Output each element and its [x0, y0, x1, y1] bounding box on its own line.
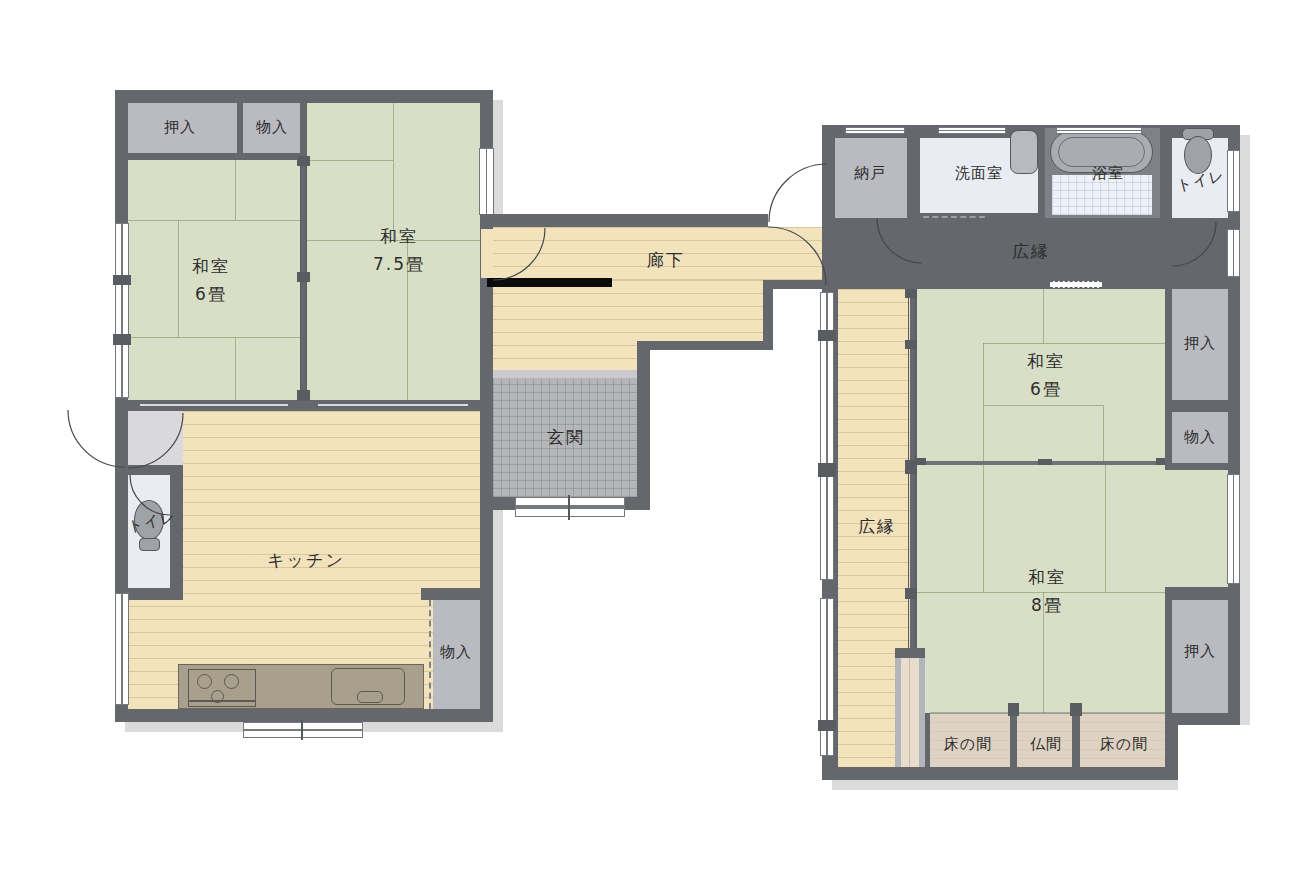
room-size-washitsu-8: 8畳 — [1031, 594, 1063, 617]
sliding-door-track — [140, 404, 288, 406]
room-label-yokushitsu: 浴室 — [1092, 164, 1124, 183]
room-label-washitsu-75: 和室 — [380, 225, 418, 248]
toilet-base-icon — [139, 538, 160, 551]
tokonoma-front-line — [930, 712, 1165, 714]
tatami-seam — [393, 103, 394, 240]
room-label-washitsu-6-left: 和室 — [192, 255, 230, 278]
room-label-kitchen: キッチン — [267, 549, 345, 572]
stove-burner-icon — [224, 674, 239, 689]
room-label-oshiire-right-top: 押入 — [1184, 334, 1216, 353]
wall-segment — [170, 465, 183, 600]
window — [115, 223, 129, 398]
entrance-door — [515, 497, 625, 517]
stove-drawer-line — [188, 700, 256, 702]
window — [1227, 474, 1240, 584]
door-tick — [568, 495, 570, 520]
window-pillar — [113, 334, 131, 345]
room-label-washitsu-6-right: 和室 — [1027, 350, 1065, 373]
window — [1056, 127, 1142, 134]
hanging-wall-dashed — [1050, 281, 1102, 288]
window — [1227, 229, 1240, 277]
tatami-alcove — [1165, 470, 1228, 587]
window — [115, 593, 129, 705]
tatami-seam — [178, 220, 179, 337]
floor-plan: 押入 物入 和室 6畳 和室 7.5畳 廊下 玄関 キッチン トイレ 物入 納戸… — [0, 0, 1297, 879]
window-pillar — [818, 720, 836, 731]
tatami-seam — [983, 405, 1103, 406]
window — [938, 127, 1006, 134]
room-washitsu-6-left — [128, 160, 300, 400]
window-wall — [820, 598, 834, 756]
tatami-seam — [235, 337, 236, 400]
window-kitchen-south — [243, 722, 363, 738]
room-label-washitsu-8: 和室 — [1028, 566, 1066, 589]
room-label-nando: 納戸 — [854, 164, 886, 183]
room-label-hiroen-side: 広縁 — [858, 515, 896, 538]
step-edge-bar — [487, 278, 612, 287]
tatami-seam — [128, 337, 300, 338]
board-grain-line — [909, 658, 910, 767]
wall-segment — [895, 648, 925, 658]
tatami-seam — [1103, 405, 1104, 463]
room-label-rouka: 廊下 — [647, 249, 685, 272]
tatami-seam — [307, 160, 393, 161]
pillar — [1070, 703, 1082, 716]
tatami-seam — [235, 160, 236, 220]
stove-burner-icon — [197, 674, 212, 689]
tatami-seam — [1043, 289, 1044, 343]
sliding-door-track — [318, 404, 468, 406]
wall-segment — [763, 280, 1240, 289]
room-label-tokonoma-right: 床の間 — [1100, 735, 1148, 754]
tatami-seam — [983, 465, 984, 592]
window-tick — [301, 720, 303, 740]
pillar — [297, 272, 310, 282]
faucet-icon — [357, 691, 383, 703]
footprint-notch — [1178, 725, 1252, 791]
tatami-seam — [983, 343, 1165, 344]
room-label-oshiire-right-bottom: 押入 — [1184, 642, 1216, 661]
tatami-seam — [983, 343, 984, 463]
room-label-butsuma: 仏間 — [1030, 735, 1062, 754]
room-size-washitsu-6-left: 6畳 — [195, 283, 227, 306]
pillar — [1008, 703, 1019, 716]
window-pillar — [113, 275, 131, 285]
window — [845, 127, 905, 134]
wall-segment — [637, 345, 650, 497]
open-front-dashed-line — [429, 600, 433, 709]
window — [1227, 150, 1240, 212]
room-label-hiroen-top: 広縁 — [1012, 240, 1050, 263]
genkan-step — [493, 370, 637, 378]
wall-segment — [637, 341, 773, 350]
wall-segment — [763, 280, 773, 348]
room-label-monoire-top-left: 物入 — [256, 118, 288, 137]
open-boundary-dashed — [923, 216, 985, 218]
room-size-washitsu-6-right: 6畳 — [1030, 378, 1062, 401]
room-label-monoire-right: 物入 — [1184, 428, 1216, 447]
board-strip — [901, 658, 919, 767]
window-pillar — [818, 463, 836, 477]
wall-segment — [421, 588, 480, 600]
room-size-washitsu-75: 7.5畳 — [373, 253, 425, 276]
corridor-north-wall — [480, 214, 768, 227]
pillar — [297, 156, 310, 166]
rail — [919, 658, 925, 767]
room-washitsu-6-right — [917, 289, 1165, 463]
entry-vestibule — [128, 411, 183, 465]
tatami-seam — [128, 220, 300, 221]
window-pillar — [818, 330, 836, 341]
pillar — [297, 390, 310, 401]
corridor-hall — [493, 280, 763, 345]
door-arc-north-entry — [769, 164, 827, 222]
room-washitsu-8 — [917, 465, 1165, 713]
door-opening — [481, 229, 493, 278]
bathtub-inner-line — [1058, 137, 1145, 167]
washbasin-icon — [1010, 130, 1038, 174]
room-label-senmenshitsu: 洗面室 — [955, 164, 1003, 183]
room-label-tokonoma-left: 床の間 — [944, 735, 992, 754]
room-label-genkan: 玄関 — [547, 426, 585, 449]
room-label-oshiire-top-left: 押入 — [164, 118, 196, 137]
tatami-seam — [1105, 465, 1106, 592]
room-label-monoire-kitchen: 物入 — [440, 643, 472, 662]
window — [479, 148, 494, 215]
